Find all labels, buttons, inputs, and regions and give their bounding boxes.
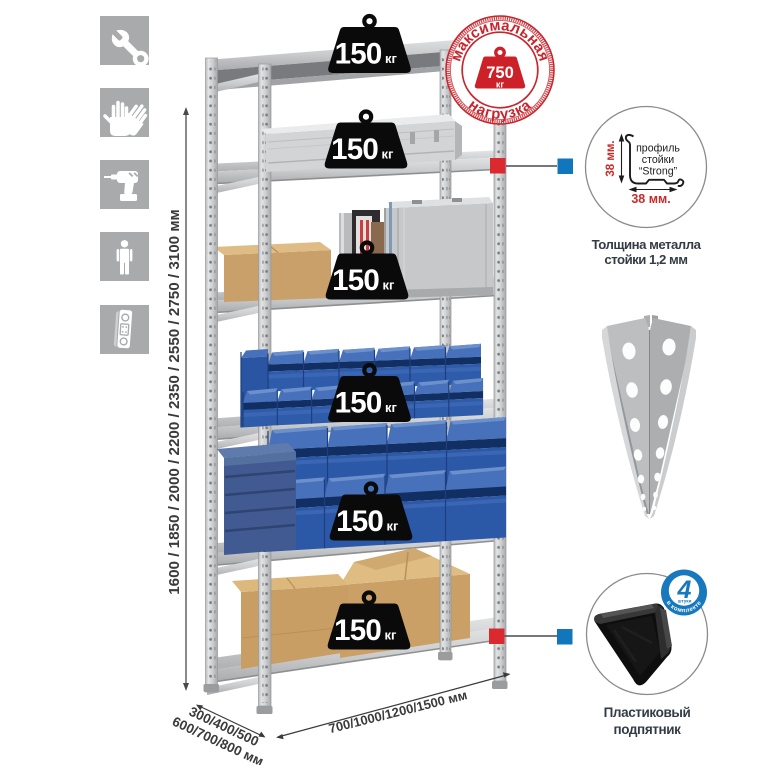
svg-text:38 мм.: 38 мм. <box>631 192 670 206</box>
svg-text:штуки: штуки <box>678 599 692 604</box>
svg-text:стойки: стойки <box>642 154 674 166</box>
svg-text:Пластиковый: Пластиковый <box>604 705 691 720</box>
svg-text:1600 / 1850 / 2000 / 2200 / 23: 1600 / 1850 / 2000 / 2200 / 2350 / 2550 … <box>166 209 183 595</box>
svg-text:38 мм.: 38 мм. <box>605 140 617 176</box>
svg-text:кг: кг <box>496 80 505 90</box>
svg-text:“Strong”: “Strong” <box>639 166 678 178</box>
svg-text:стойки 1,2 мм: стойки 1,2 мм <box>604 252 687 267</box>
svg-text:Толщина металла: Толщина металла <box>592 237 702 252</box>
svg-text:подпятник: подпятник <box>613 722 681 737</box>
svg-text:профиль: профиль <box>636 143 680 155</box>
